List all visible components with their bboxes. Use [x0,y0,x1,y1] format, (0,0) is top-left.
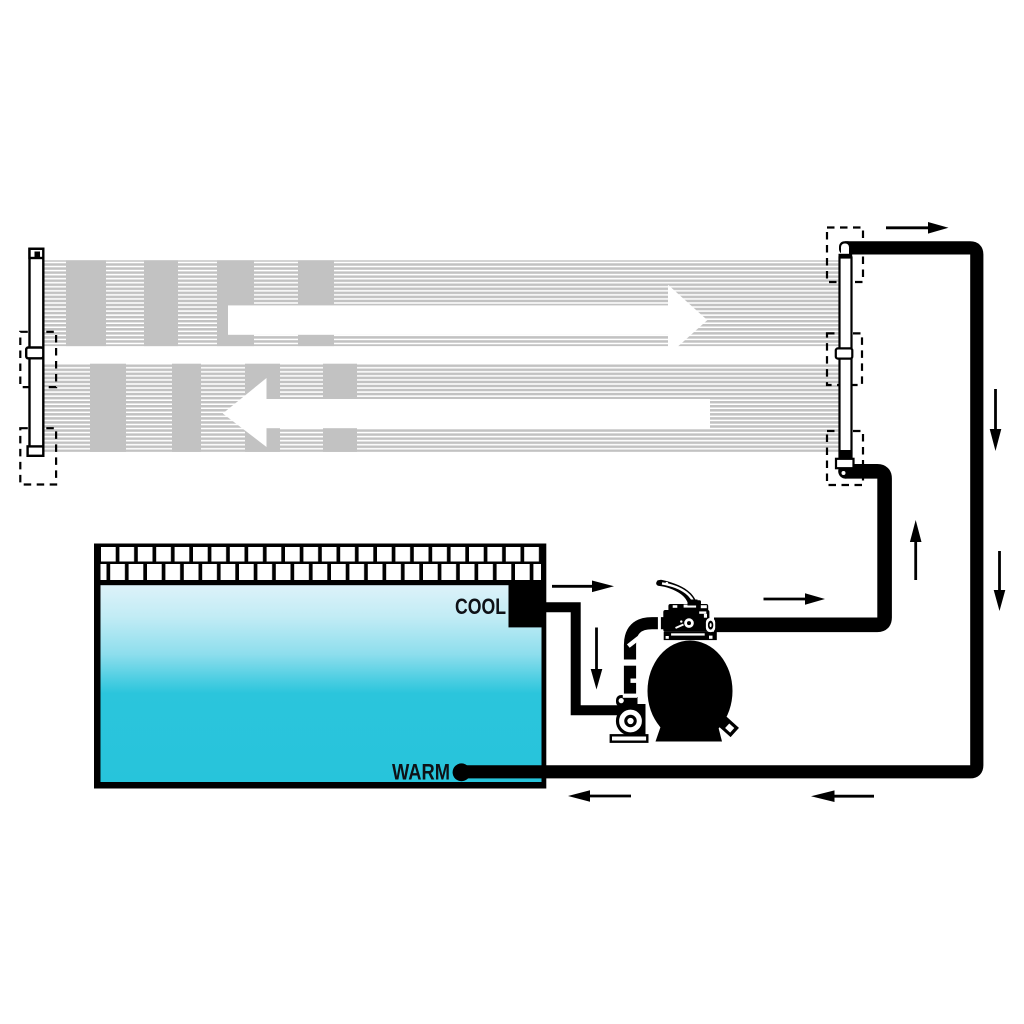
svg-text:COOL: COOL [455,594,506,619]
svg-text:WARM: WARM [392,760,450,785]
